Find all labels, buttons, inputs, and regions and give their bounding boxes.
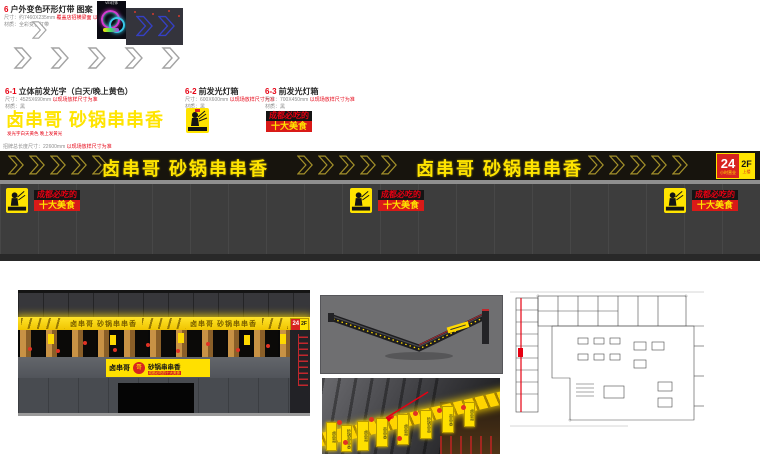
section61-title-text: 立体前发光字（白天/晚上黄色）	[19, 87, 133, 96]
neon-bar	[103, 28, 119, 32]
chevron-icon	[297, 155, 313, 175]
banner-shop-name-2: 卤串哥 砂锅串串香	[416, 155, 583, 181]
section63-specs: 尺寸：700X450mm 以现场放样尺寸为准 材质：黑	[265, 97, 355, 110]
section63-title-text: 前发光灯箱	[279, 87, 319, 96]
mascot-logo-art	[350, 188, 372, 213]
section61-number: 6-1	[5, 87, 17, 96]
render-sign-left: 卤串哥	[109, 363, 130, 373]
chevron-pattern-panel	[126, 8, 183, 45]
mascot-logo-badge	[6, 188, 28, 213]
annotation-arrow	[322, 378, 500, 454]
badge-2f-yellow: 2F 上楼	[739, 154, 754, 178]
chevron-icon	[609, 155, 625, 175]
section6-number: 6	[4, 5, 8, 14]
section61-spec1-red: 以现场放样尺寸为准	[53, 97, 98, 103]
mascot-logo-art	[186, 108, 209, 133]
badge-24-number: 24	[721, 157, 735, 170]
badge-24-red: 24 小时营业	[717, 154, 739, 178]
chevron-row	[13, 47, 181, 69]
mascot-logo-art	[664, 188, 686, 213]
storefront-render-image: 卤串哥 砂锅串串香 卤串哥 砂锅串串香 24 2F 卤串哥 哥 砂锅串串香 成都…	[18, 290, 310, 416]
closeup-render-image: 卤串哥 砂锅串串香 卤串哥 串串香 卤串哥 砂锅串串 串串香 卤串哥	[322, 378, 500, 454]
mascot-logo-art	[6, 188, 28, 213]
top-ten-food-badge: 成都必吃的 十大美食	[378, 190, 424, 211]
section62-title-text: 前发光灯箱	[199, 87, 239, 96]
hours-24-badge: 24 小时营业 2F 上楼	[716, 153, 755, 179]
mascot-logo-badge	[350, 188, 372, 213]
chevron-icon	[50, 155, 66, 175]
food-badge-line1: 成都必吃的	[266, 111, 312, 121]
section61-spec1: 尺寸：4525X690mm	[5, 97, 51, 103]
chevron-icon	[50, 47, 70, 69]
elevation-base-strip	[0, 254, 760, 261]
render-right-column	[290, 330, 310, 413]
chevron-icon	[161, 47, 181, 69]
section62-number: 6-2	[185, 87, 197, 96]
signage-banner: 卤串哥 砂锅串串香 卤串哥 砂锅串串香 24 小时营业 2F 上楼	[0, 151, 760, 180]
food-badge-line1: 成都必吃的	[34, 190, 80, 200]
food-badge-line2: 十大美食	[266, 121, 312, 132]
section62-spec1: 尺寸：600X600mm	[185, 97, 228, 103]
food-badge-line1: 成都必吃的	[692, 190, 738, 200]
chevron-icon	[87, 47, 107, 69]
render-2f-number: 2F	[300, 319, 308, 330]
render-shop-windows	[18, 330, 310, 357]
chevron-icon	[29, 155, 45, 175]
section63-spec2: 材质：黑	[265, 104, 355, 111]
section63-title: 6-3前发光灯箱	[265, 86, 319, 97]
neon-caption: VEI灯饰	[97, 1, 126, 6]
signboard-3d-model	[321, 296, 502, 373]
render-band-text-2: 卤串哥 砂锅串串香	[190, 319, 257, 329]
section63-spec1: 尺寸：700X450mm	[265, 97, 308, 103]
top-ten-food-badge: 成都必吃的 十大美食	[34, 190, 80, 211]
banner-chevron-group	[297, 155, 397, 175]
neon-light-sample-image: VEI灯饰	[97, 1, 126, 39]
floor-plan-drawing	[508, 286, 706, 432]
small-hanging-signs	[48, 334, 54, 344]
render-24-number: 24	[291, 319, 300, 330]
chevron-icon	[630, 155, 646, 175]
chevron-icon	[32, 21, 47, 39]
section6-title-text: 户外变色环形灯带 图案	[10, 5, 92, 14]
fire-escape-ladder	[298, 334, 308, 386]
food-badge-line2: 十大美食	[34, 200, 80, 211]
banner-spec-gray: 招牌总长度尺寸：22600mm	[3, 144, 65, 150]
render-banner-band: 卤串哥 砂锅串串香 卤串哥 砂锅串串香 24 2F	[18, 317, 310, 330]
section61-note: 发光字白天黄色 晚上发黄光	[7, 131, 62, 137]
design-sheet: 6户外变色环形灯带 图案 尺寸：约7460X235mm 覆盖店招横梁面 以现场放…	[0, 0, 760, 461]
lightbox-badge-pair: 成都必吃的 十大美食	[664, 188, 738, 213]
render-main-sign: 卤串哥 哥 砂锅串串香 成都必吃的十大美食	[106, 359, 210, 377]
render-sign-sub: 成都必吃的十大美食	[148, 371, 181, 376]
section6-title: 6户外变色环形灯带 图案	[4, 4, 93, 15]
section62-title: 6-2前发光灯箱	[185, 86, 239, 97]
render-entrance	[118, 383, 194, 413]
food-badge-line1: 成都必吃的	[378, 190, 424, 200]
lightbox-badge-pair: 成都必吃的 十大美食	[350, 188, 424, 213]
food-badge-line2: 十大美食	[692, 200, 738, 211]
shop-name-headline: 卤串哥 砂锅串串香	[6, 106, 164, 132]
chevron-icon	[588, 155, 604, 175]
render-facade-panels	[18, 293, 310, 317]
chevron-icon	[13, 47, 33, 69]
chevron-icon	[8, 155, 24, 175]
banner-spec: 招牌总长度尺寸：22600mm 以现场放样尺寸为准	[3, 144, 112, 151]
banner-chevron-group	[8, 155, 108, 175]
top-ten-food-badge: 成都必吃的 十大美食	[692, 190, 738, 211]
render-chevron-marks	[262, 318, 288, 329]
section63-spec1-red: 以现场放样尺寸为准	[310, 97, 355, 103]
chevron-icon	[71, 155, 87, 175]
badge-2f-number: 2F	[741, 159, 752, 169]
render-chevron-marks	[21, 318, 65, 329]
red-lanterns	[28, 347, 32, 351]
banner-spec-red: 以现场放样尺寸为准	[67, 144, 112, 150]
section6-spec1: 尺寸：约7460X235mm	[4, 15, 55, 21]
model-viewport-image	[320, 295, 503, 374]
top-ten-food-badge: 成都必吃的 十大美食	[266, 111, 312, 132]
chevron-icon	[381, 155, 397, 175]
chevron-icon	[360, 155, 376, 175]
chevron-icon	[339, 155, 355, 175]
chevron-icon	[651, 155, 667, 175]
mascot-logo-badge	[186, 108, 209, 133]
blue-chevron-icon	[158, 15, 175, 37]
render-chevron-marks	[142, 318, 186, 329]
floor-plan-image	[508, 286, 706, 432]
chevron-icon	[318, 155, 334, 175]
banner-shop-name-1: 卤串哥 砂锅串串香	[102, 155, 269, 181]
section61-title: 6-1立体前发光字（白天/晚上黄色）	[5, 86, 133, 97]
mascot-logo-badge	[664, 188, 686, 213]
chevron-icon	[124, 47, 144, 69]
badge-2f-sub: 上楼	[743, 169, 751, 174]
render-floor-strip	[18, 413, 310, 416]
lightbox-badge-pair: 成都必吃的 十大美食	[6, 188, 80, 213]
render-band-text-1: 卤串哥 砂锅串串香	[70, 319, 137, 329]
banner-chevron-group	[588, 155, 688, 175]
blue-chevron-icon	[136, 15, 153, 37]
red-dots	[134, 11, 136, 13]
food-badge-line2: 十大美食	[378, 200, 424, 211]
section63-number: 6-3	[265, 87, 277, 96]
render-sign-logo-circle: 哥	[133, 362, 145, 374]
badge-24-sub: 小时营业	[720, 170, 736, 175]
chevron-icon	[672, 155, 688, 175]
render-sign-right: 砂锅串串香	[148, 361, 181, 371]
